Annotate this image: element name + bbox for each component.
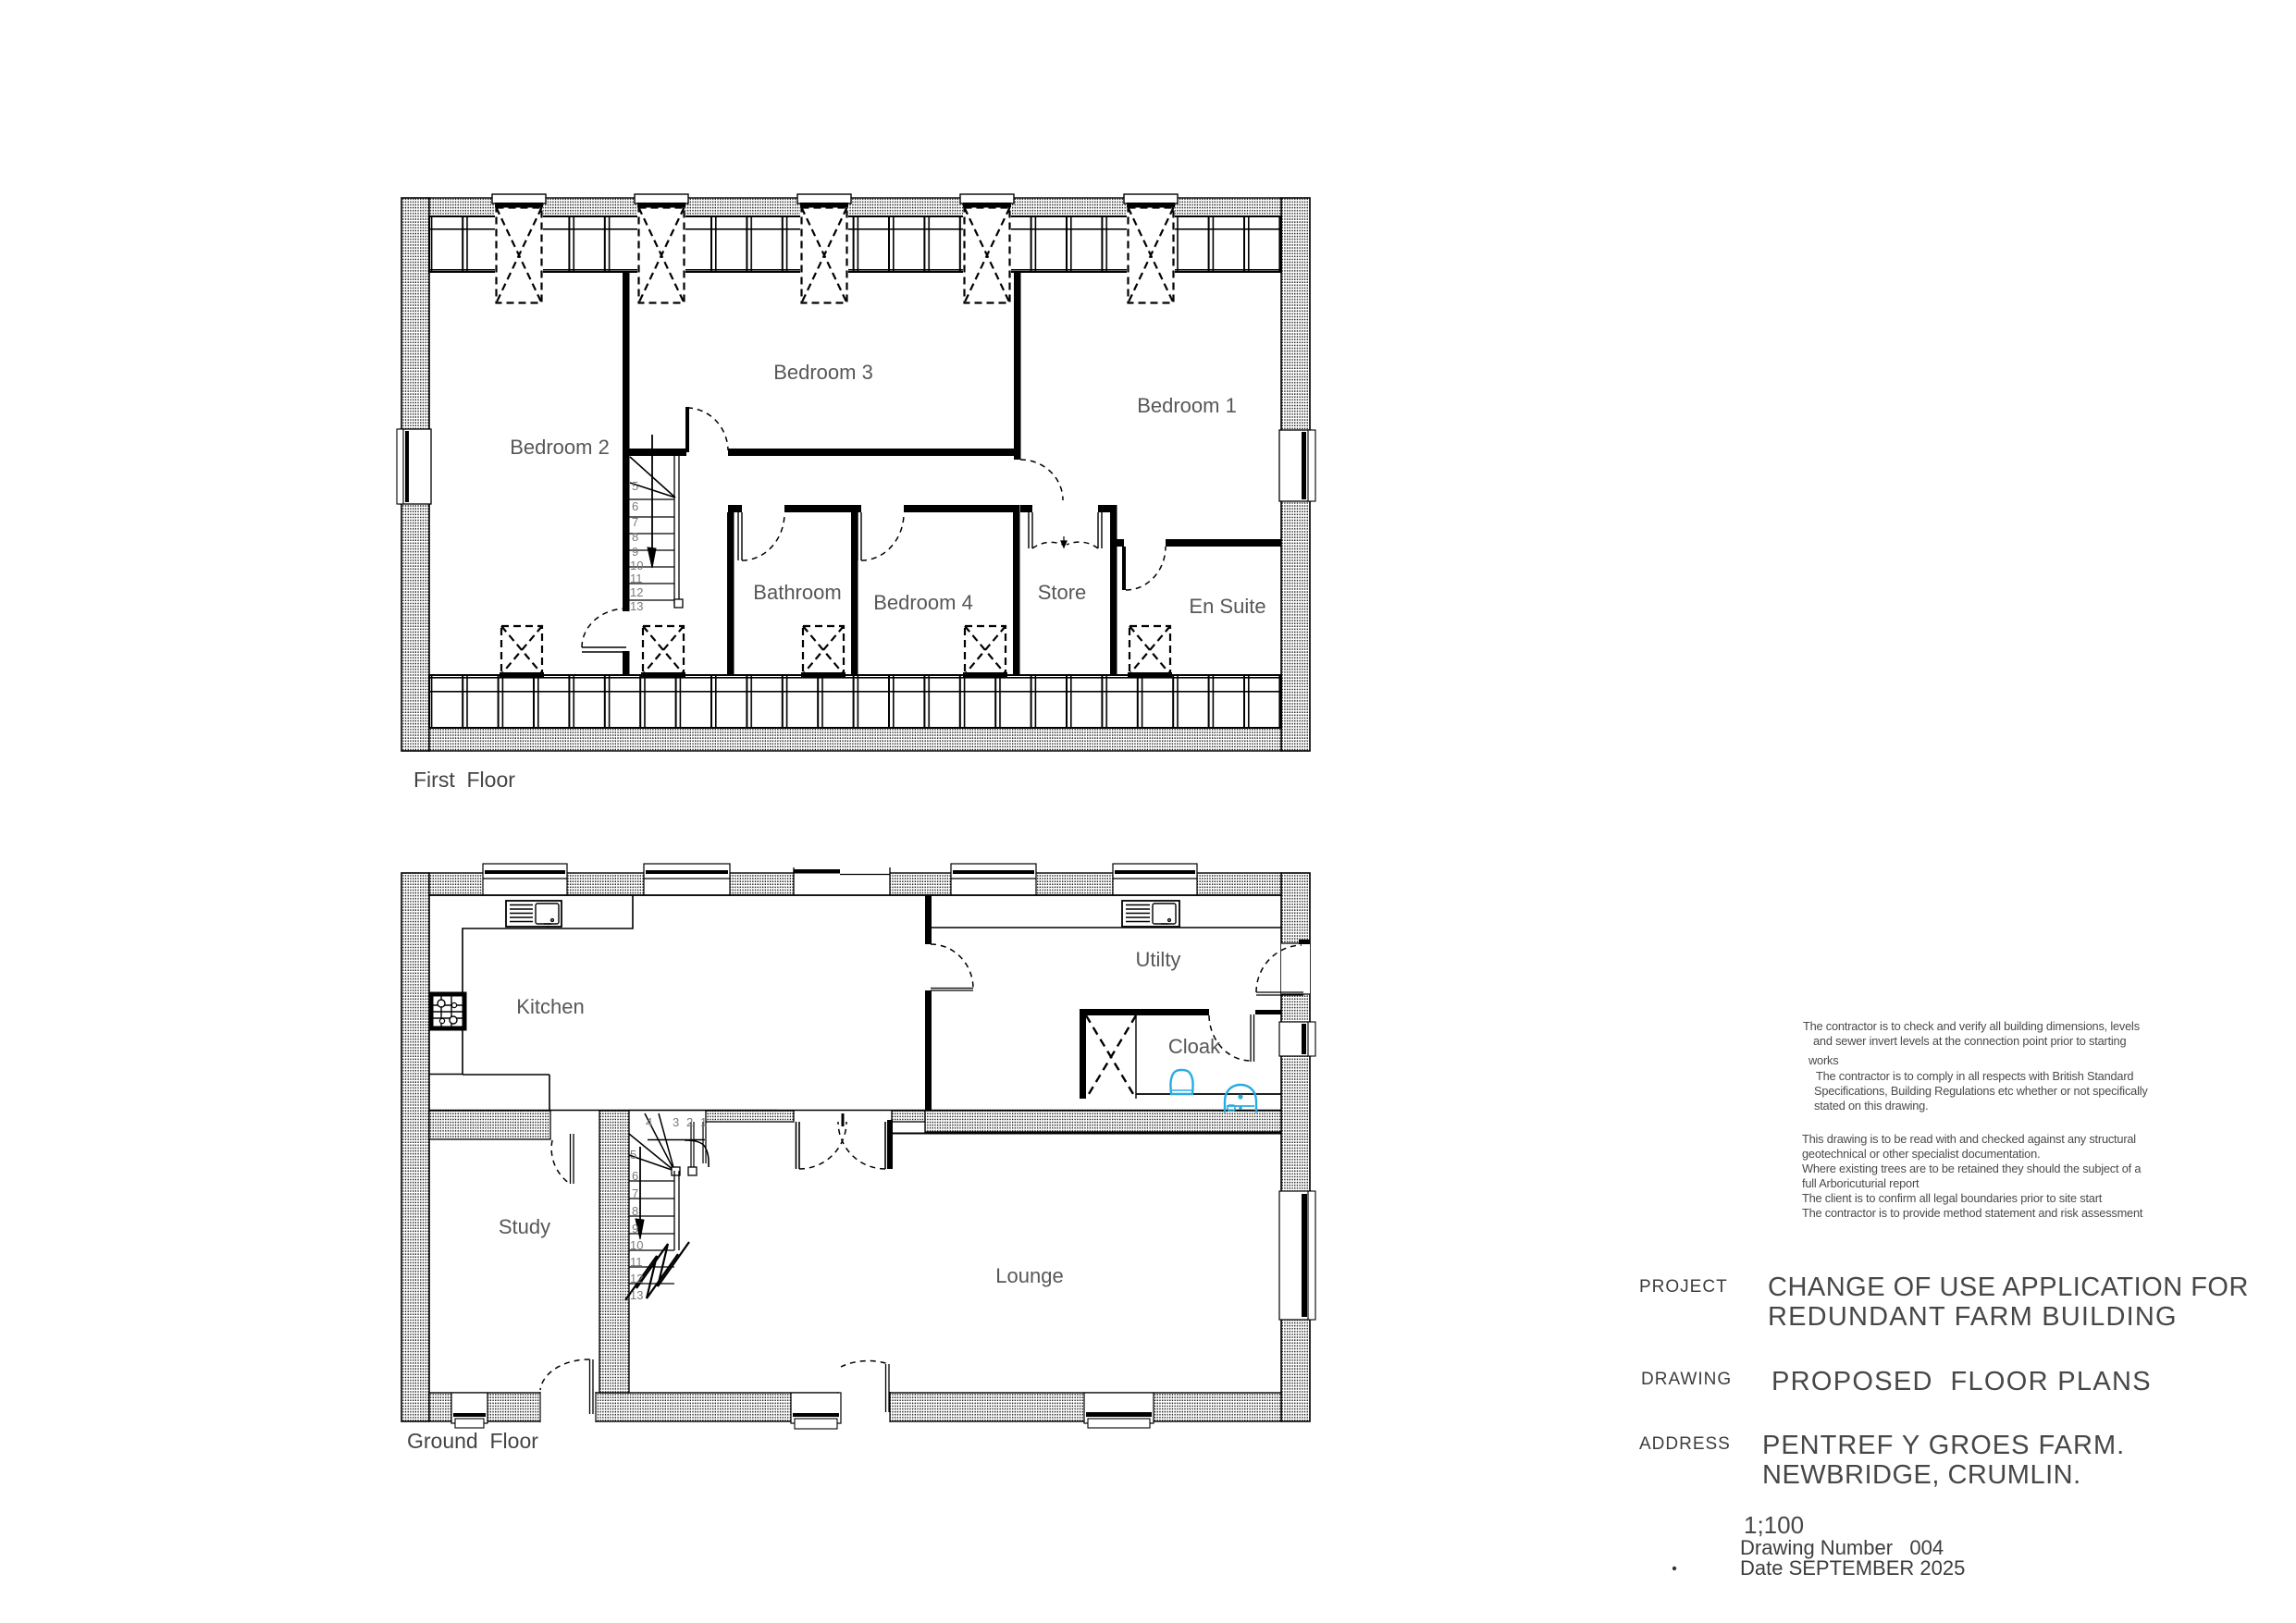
svg-text:PROPOSED FLOOR PLANS: PROPOSED FLOOR PLANS: [1771, 1367, 2152, 1396]
svg-text:10: 10: [630, 1238, 643, 1252]
svg-text:NEWBRIDGE, CRUMLIN.: NEWBRIDGE, CRUMLIN.: [1762, 1460, 2081, 1490]
svg-text:full Arboricuturial report: full Arboricuturial report: [1802, 1176, 1920, 1190]
svg-text:First Floor: First Floor: [414, 768, 515, 792]
svg-text:Specifications, Building Regul: Specifications, Building Regulations etc…: [1814, 1084, 2148, 1098]
svg-text:PENTREF Y GROES FARM.: PENTREF Y GROES FARM.: [1762, 1431, 2125, 1460]
svg-text:ADDRESS: ADDRESS: [1639, 1434, 1731, 1454]
svg-text:5: 5: [630, 1148, 636, 1162]
svg-text:stated on this drawing.: stated on this drawing.: [1814, 1099, 1928, 1113]
svg-text:Ground Floor: Ground Floor: [407, 1429, 538, 1453]
svg-text:5: 5: [632, 479, 638, 493]
svg-text:4: 4: [646, 1115, 652, 1129]
svg-text:CHANGE OF USE APPLICATION FOR: CHANGE OF USE APPLICATION FOR: [1768, 1273, 2249, 1302]
svg-text:REDUNDANT FARM BUILDING: REDUNDANT FARM BUILDING: [1768, 1302, 2178, 1332]
svg-text:10: 10: [630, 559, 643, 572]
svg-text:The contractor is to comply in: The contractor is to comply in all respe…: [1816, 1069, 2133, 1083]
svg-text:13: 13: [630, 599, 643, 613]
svg-text:En Suite: En Suite: [1189, 595, 1265, 618]
svg-text:The client is to confirm all l: The client is to confirm all legal bound…: [1802, 1191, 2103, 1205]
svg-text:Kitchen: Kitchen: [516, 995, 584, 1018]
svg-text:12: 12: [630, 1272, 643, 1285]
svg-text:and sewer invert levels at the: and sewer invert levels at the connectio…: [1813, 1034, 2126, 1048]
svg-text:11: 11: [630, 1255, 643, 1269]
svg-text:1;100: 1;100: [1744, 1511, 1804, 1539]
svg-text:Where existing trees are to be: Where existing trees are to be retained …: [1802, 1162, 2142, 1175]
svg-text:PROJECT: PROJECT: [1639, 1277, 1728, 1297]
svg-text:geotechnical or other speciali: geotechnical or other specialist documen…: [1802, 1147, 2040, 1161]
svg-text:The contractor is to check and: The contractor is to check and verify al…: [1803, 1019, 2140, 1033]
svg-text:Date SEPTEMBER 2025: Date SEPTEMBER 2025: [1740, 1556, 1965, 1580]
svg-text:12: 12: [630, 585, 643, 599]
svg-text:This drawing is to be read wit: This drawing is to be read with and chec…: [1802, 1132, 2136, 1146]
svg-text:Bedroom 2: Bedroom 2: [510, 436, 610, 459]
svg-text:7: 7: [632, 1187, 638, 1200]
svg-text:works: works: [1808, 1053, 1838, 1067]
svg-text:Utilty: Utilty: [1136, 948, 1181, 971]
svg-text:Bedroom 1: Bedroom 1: [1137, 394, 1237, 417]
svg-text:8: 8: [632, 1204, 638, 1218]
svg-text:13: 13: [630, 1288, 643, 1302]
svg-text:Bedroom 4: Bedroom 4: [873, 591, 973, 614]
svg-text:9: 9: [632, 545, 638, 559]
svg-text:DRAWING: DRAWING: [1641, 1370, 1732, 1389]
svg-text:Bedroom 3: Bedroom 3: [773, 361, 873, 384]
svg-text:Store: Store: [1038, 581, 1087, 604]
svg-text:9: 9: [632, 1222, 638, 1236]
svg-text:2: 2: [686, 1115, 693, 1129]
svg-text:The contractor is to provide m: The contractor is to provide method stat…: [1802, 1206, 2143, 1220]
svg-text:6: 6: [632, 499, 638, 513]
svg-text:11: 11: [630, 572, 643, 585]
svg-text:7: 7: [632, 515, 638, 529]
svg-text:3: 3: [673, 1115, 679, 1129]
svg-text:Cloak: Cloak: [1168, 1035, 1221, 1058]
svg-text:8: 8: [632, 530, 638, 544]
svg-text:Lounge: Lounge: [995, 1264, 1063, 1287]
svg-text:Bathroom: Bathroom: [753, 581, 841, 604]
svg-text:6: 6: [632, 1169, 638, 1183]
svg-text:1: 1: [700, 1115, 707, 1129]
svg-text:Study: Study: [499, 1215, 550, 1238]
